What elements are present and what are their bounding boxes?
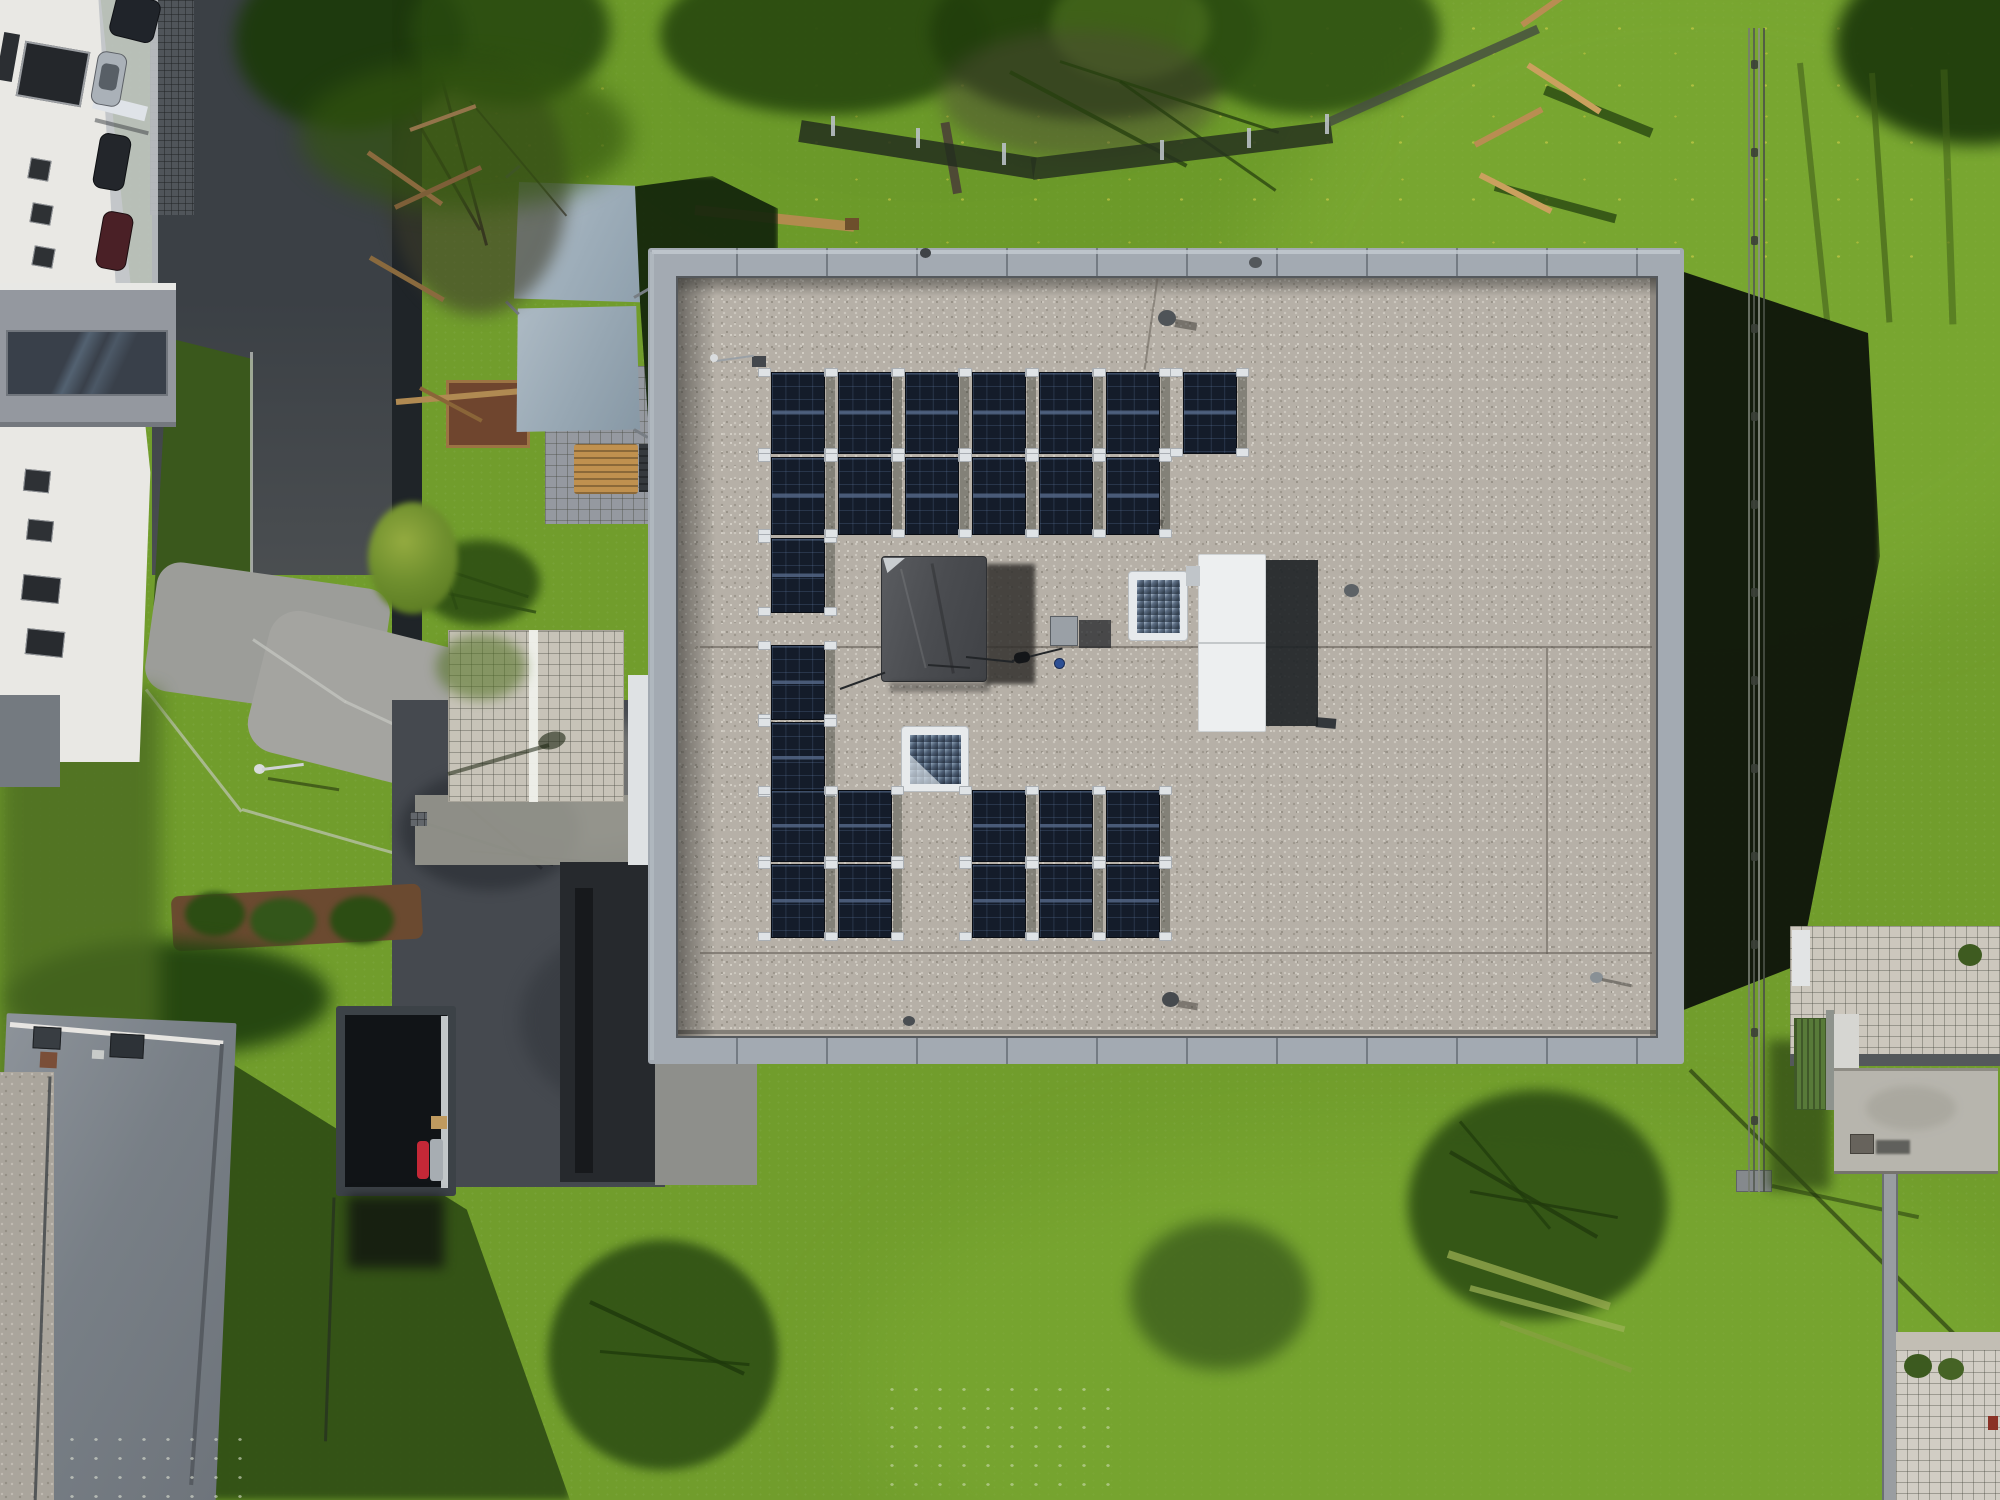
garage-roof-stain bbox=[1866, 1086, 1956, 1130]
fence-post-n3 bbox=[1002, 143, 1006, 165]
solar-mount-foot bbox=[758, 534, 771, 543]
solar-mount-foot bbox=[824, 607, 837, 616]
solar-panel-shadow bbox=[960, 377, 969, 457]
roof-vent-3 bbox=[1249, 257, 1262, 268]
roof-pipe-2 bbox=[1316, 717, 1337, 729]
carport-silver-object bbox=[430, 1139, 443, 1181]
bed-bush-1 bbox=[185, 892, 245, 936]
solar-mount-foot bbox=[1170, 368, 1183, 377]
wb-lower-window-3 bbox=[21, 574, 62, 604]
blb-roofbox-2 bbox=[109, 1033, 144, 1059]
solar-mount-foot bbox=[959, 932, 972, 941]
wb-wing-trim bbox=[0, 283, 176, 290]
solar-mount-foot bbox=[959, 453, 972, 462]
south-flower-speckles bbox=[880, 1380, 1120, 1490]
solar-panel-shadow bbox=[826, 543, 835, 616]
solar-panel bbox=[972, 372, 1026, 454]
solar-mount-foot bbox=[758, 860, 771, 869]
solar-mount-foot bbox=[1026, 453, 1039, 462]
east-fence-post bbox=[1751, 588, 1758, 597]
solar-panel bbox=[838, 372, 892, 454]
bed-bush-3 bbox=[330, 896, 394, 944]
solar-panel bbox=[771, 722, 825, 794]
solar-panel-shadow bbox=[1094, 795, 1103, 865]
solar-mount-foot bbox=[1026, 529, 1039, 538]
blb-vent bbox=[92, 1050, 104, 1060]
roof-bottom-inner-line bbox=[678, 1030, 1656, 1034]
neighbor-pot-1 bbox=[1958, 944, 1982, 966]
solar-panel bbox=[1039, 372, 1093, 454]
solar-mount-foot bbox=[758, 368, 771, 377]
drain-grate bbox=[410, 812, 427, 826]
east-fence-post bbox=[1751, 676, 1758, 685]
solar-mount-foot bbox=[1093, 932, 1106, 941]
roof-seam-h2 bbox=[700, 952, 1652, 954]
solar-mount-foot bbox=[1093, 786, 1106, 795]
solar-mount-foot bbox=[1159, 529, 1172, 538]
solar-mount-foot bbox=[1026, 368, 1039, 377]
solar-mount-foot bbox=[1093, 529, 1106, 538]
roof-seam-v1 bbox=[1546, 648, 1548, 954]
solar-mount-foot bbox=[824, 641, 837, 650]
graybox-shadow bbox=[1079, 620, 1111, 648]
solar-panel bbox=[838, 864, 892, 938]
solar-mount-foot bbox=[825, 368, 838, 377]
solar-panel bbox=[972, 864, 1026, 938]
roof-vent-6 bbox=[1590, 972, 1603, 983]
solar-mount-foot bbox=[758, 718, 771, 727]
se-paver-step bbox=[1896, 1332, 2000, 1350]
blb-roofbox-1 bbox=[32, 1026, 61, 1049]
wb-wing-south-edge bbox=[0, 422, 176, 427]
graybox bbox=[1050, 616, 1078, 646]
playground-wood-deck bbox=[574, 444, 638, 494]
solar-panel-shadow bbox=[826, 462, 835, 538]
roof-vent-4 bbox=[1344, 584, 1359, 597]
roof-west-inner-shadow bbox=[678, 278, 716, 1036]
solar-mount-foot bbox=[1026, 860, 1039, 869]
solar-mount-foot bbox=[758, 786, 771, 795]
solar-mount-foot bbox=[825, 860, 838, 869]
carport-red-object bbox=[417, 1141, 429, 1179]
carport-opening-shadow bbox=[348, 1196, 444, 1268]
bed-bush-2 bbox=[250, 898, 316, 944]
solar-panel bbox=[1106, 790, 1160, 862]
solar-panel bbox=[1039, 457, 1093, 535]
solar-panel bbox=[1039, 790, 1093, 862]
solar-mount-foot bbox=[892, 368, 905, 377]
wb-wing-glass bbox=[6, 330, 168, 396]
solar-panel-shadow bbox=[1027, 462, 1036, 538]
neighbor-white-object bbox=[1792, 930, 1810, 986]
entrance-glass bbox=[575, 888, 593, 1173]
solar-panel-shadow bbox=[826, 650, 835, 723]
solar-panel bbox=[771, 864, 825, 938]
east-fence-line-4 bbox=[1763, 28, 1765, 1192]
solar-mount-foot bbox=[1236, 368, 1249, 377]
solar-mount-foot bbox=[758, 932, 771, 941]
roof-vent-2 bbox=[920, 248, 931, 258]
garage-edge-n bbox=[1834, 1068, 1998, 1071]
wb-garage-roof bbox=[0, 695, 60, 787]
solar-panel-shadow bbox=[960, 462, 969, 538]
solar-panel bbox=[905, 457, 959, 535]
skylight-1-glass bbox=[1137, 580, 1180, 633]
solar-panel bbox=[1183, 372, 1237, 454]
solar-panel bbox=[771, 457, 825, 535]
solar-panel-shadow bbox=[1027, 377, 1036, 457]
solar-panel-shadow bbox=[1094, 462, 1103, 538]
shed-side bbox=[1826, 1010, 1834, 1110]
solar-mount-foot bbox=[1093, 453, 1106, 462]
solar-panel-shadow bbox=[893, 869, 902, 941]
roof-seam-h1 bbox=[700, 646, 1652, 648]
solar-panel-shadow bbox=[1094, 377, 1103, 457]
solar-panel bbox=[1039, 864, 1093, 938]
wb-sq-window-1 bbox=[27, 157, 51, 181]
roof-vent-7 bbox=[903, 1016, 915, 1026]
solar-panel-shadow bbox=[1161, 377, 1170, 457]
solar-mount-foot bbox=[891, 786, 904, 795]
east-fence-post bbox=[1751, 412, 1758, 421]
solar-mount-foot bbox=[1026, 932, 1039, 941]
solar-panel-shadow bbox=[826, 795, 835, 865]
fence-post-n1 bbox=[831, 116, 835, 136]
east-fence-post bbox=[1751, 940, 1758, 949]
roof-vent-5 bbox=[1162, 992, 1179, 1007]
fence-post-n2 bbox=[916, 128, 920, 148]
solar-panel bbox=[838, 790, 892, 862]
solar-panel bbox=[771, 538, 825, 613]
east-fence-post bbox=[1751, 764, 1758, 773]
east-fence-post bbox=[1751, 148, 1758, 157]
solar-panel-shadow bbox=[1027, 795, 1036, 865]
solar-panel bbox=[1106, 864, 1160, 938]
solar-mount-foot bbox=[1236, 448, 1249, 457]
solar-panel bbox=[905, 372, 959, 454]
shade-sail-2 bbox=[514, 306, 640, 432]
roof-top-inner-shadow bbox=[678, 278, 1656, 296]
roof-vent-1 bbox=[1158, 310, 1176, 326]
solar-panel bbox=[771, 790, 825, 862]
solar-mount-foot bbox=[1159, 860, 1172, 869]
roof-sensor-tip bbox=[710, 354, 718, 362]
solar-panel-shadow bbox=[1161, 795, 1170, 865]
whitebox-seam bbox=[1198, 642, 1266, 644]
fence-post-n4 bbox=[1160, 140, 1164, 160]
solar-panel bbox=[1106, 372, 1160, 454]
solar-mount-foot bbox=[758, 453, 771, 462]
solar-panel bbox=[972, 790, 1026, 862]
garage-chimney bbox=[1850, 1134, 1874, 1154]
solar-mount-foot bbox=[1093, 368, 1106, 377]
solar-panel-shadow bbox=[1161, 869, 1170, 941]
solar-mount-foot bbox=[758, 641, 771, 650]
tarp-south-shadow bbox=[890, 682, 990, 692]
blb-chimney bbox=[40, 1052, 58, 1069]
garage-chimney-shadow bbox=[1876, 1140, 1910, 1154]
solar-mount-foot bbox=[825, 529, 838, 538]
neighbor-path-edge-1 bbox=[1882, 1174, 1884, 1500]
solar-panel-shadow bbox=[826, 377, 835, 457]
east-fence-post bbox=[1751, 236, 1758, 245]
roof-right-inner-line bbox=[1650, 278, 1656, 1036]
south-shadow-blob-2 bbox=[1130, 1220, 1310, 1370]
solar-mount-foot bbox=[959, 860, 972, 869]
solar-mount-foot bbox=[1170, 448, 1183, 457]
solar-panel-shadow bbox=[1161, 462, 1170, 538]
solar-mount-foot bbox=[959, 786, 972, 795]
solar-panel-shadow bbox=[1238, 377, 1247, 457]
solar-panel bbox=[771, 372, 825, 454]
roof-sensor-box bbox=[752, 356, 766, 367]
solar-mount-foot bbox=[892, 529, 905, 538]
solar-panel-shadow bbox=[1094, 869, 1103, 941]
east-fence-post bbox=[1751, 60, 1758, 69]
wb-lower-window-1 bbox=[23, 469, 51, 494]
patio-shadow-spill bbox=[436, 634, 526, 700]
apron-concrete-entrance bbox=[652, 1058, 757, 1185]
east-fence-post bbox=[1751, 500, 1758, 509]
wb-sq-window-2 bbox=[29, 202, 53, 225]
east-fence-post bbox=[1751, 324, 1758, 333]
solar-mount-foot bbox=[1026, 786, 1039, 795]
east-fence-post bbox=[1751, 1116, 1758, 1125]
blue-fitting bbox=[1054, 658, 1065, 669]
solar-mount-foot bbox=[959, 368, 972, 377]
solar-mount-foot bbox=[1159, 786, 1172, 795]
solar-panel bbox=[771, 645, 825, 720]
east-fence-post bbox=[1751, 852, 1758, 861]
east-fence-line-2 bbox=[1753, 28, 1755, 1192]
se-pot-1 bbox=[1904, 1354, 1932, 1378]
solar-panel-shadow bbox=[1027, 869, 1036, 941]
solar-panel-shadow bbox=[893, 795, 902, 865]
whitebox-shadow bbox=[1264, 560, 1318, 726]
wb-ribbon-window bbox=[16, 41, 91, 108]
patio-white-stripe bbox=[529, 630, 538, 802]
carport-tan-box bbox=[431, 1116, 447, 1129]
wood-beam-cap bbox=[845, 218, 859, 230]
small-tree-canopy bbox=[368, 502, 458, 614]
solar-mount-foot bbox=[824, 718, 837, 727]
solar-mount-foot bbox=[825, 932, 838, 941]
solar-mount-foot bbox=[825, 453, 838, 462]
solar-mount-foot bbox=[892, 453, 905, 462]
roof-band-highlight-top bbox=[652, 250, 1680, 254]
solar-panel bbox=[1106, 457, 1160, 535]
east-fence-line-3 bbox=[1758, 28, 1760, 1192]
sw-flower-speckles bbox=[60, 1430, 250, 1500]
solar-mount-foot bbox=[891, 860, 904, 869]
se-pot-2 bbox=[1938, 1358, 1964, 1380]
fence-post-n6 bbox=[1325, 114, 1329, 134]
solar-panel bbox=[838, 457, 892, 535]
aerial-photo-solar-roof bbox=[0, 0, 2000, 1500]
garage-edge-s bbox=[1834, 1171, 1998, 1174]
fence-post-n5 bbox=[1247, 128, 1251, 148]
nw-canopy-shadow bbox=[300, 60, 630, 210]
wb-sq-window-3 bbox=[31, 245, 55, 268]
roof-band-highlight-west bbox=[650, 252, 654, 1060]
solar-mount-foot bbox=[1159, 932, 1172, 941]
east-fence-line-1 bbox=[1748, 28, 1750, 1192]
solar-mount-foot bbox=[758, 607, 771, 616]
solar-mount-foot bbox=[891, 932, 904, 941]
solar-panel-shadow bbox=[826, 869, 835, 941]
solar-panel-shadow bbox=[893, 462, 902, 538]
whitebox-step bbox=[1186, 566, 1200, 586]
solar-mount-foot bbox=[959, 529, 972, 538]
se-red-item bbox=[1988, 1416, 1998, 1430]
wb-lower-window-2 bbox=[26, 519, 54, 543]
solar-mount-foot bbox=[825, 786, 838, 795]
solar-mount-foot bbox=[1093, 860, 1106, 869]
wb-lower-window-4 bbox=[25, 628, 66, 658]
tarp-shadow bbox=[985, 564, 1035, 684]
solar-panel bbox=[972, 457, 1026, 535]
east-fence-post bbox=[1751, 1028, 1758, 1037]
solar-panel-shadow bbox=[893, 377, 902, 457]
